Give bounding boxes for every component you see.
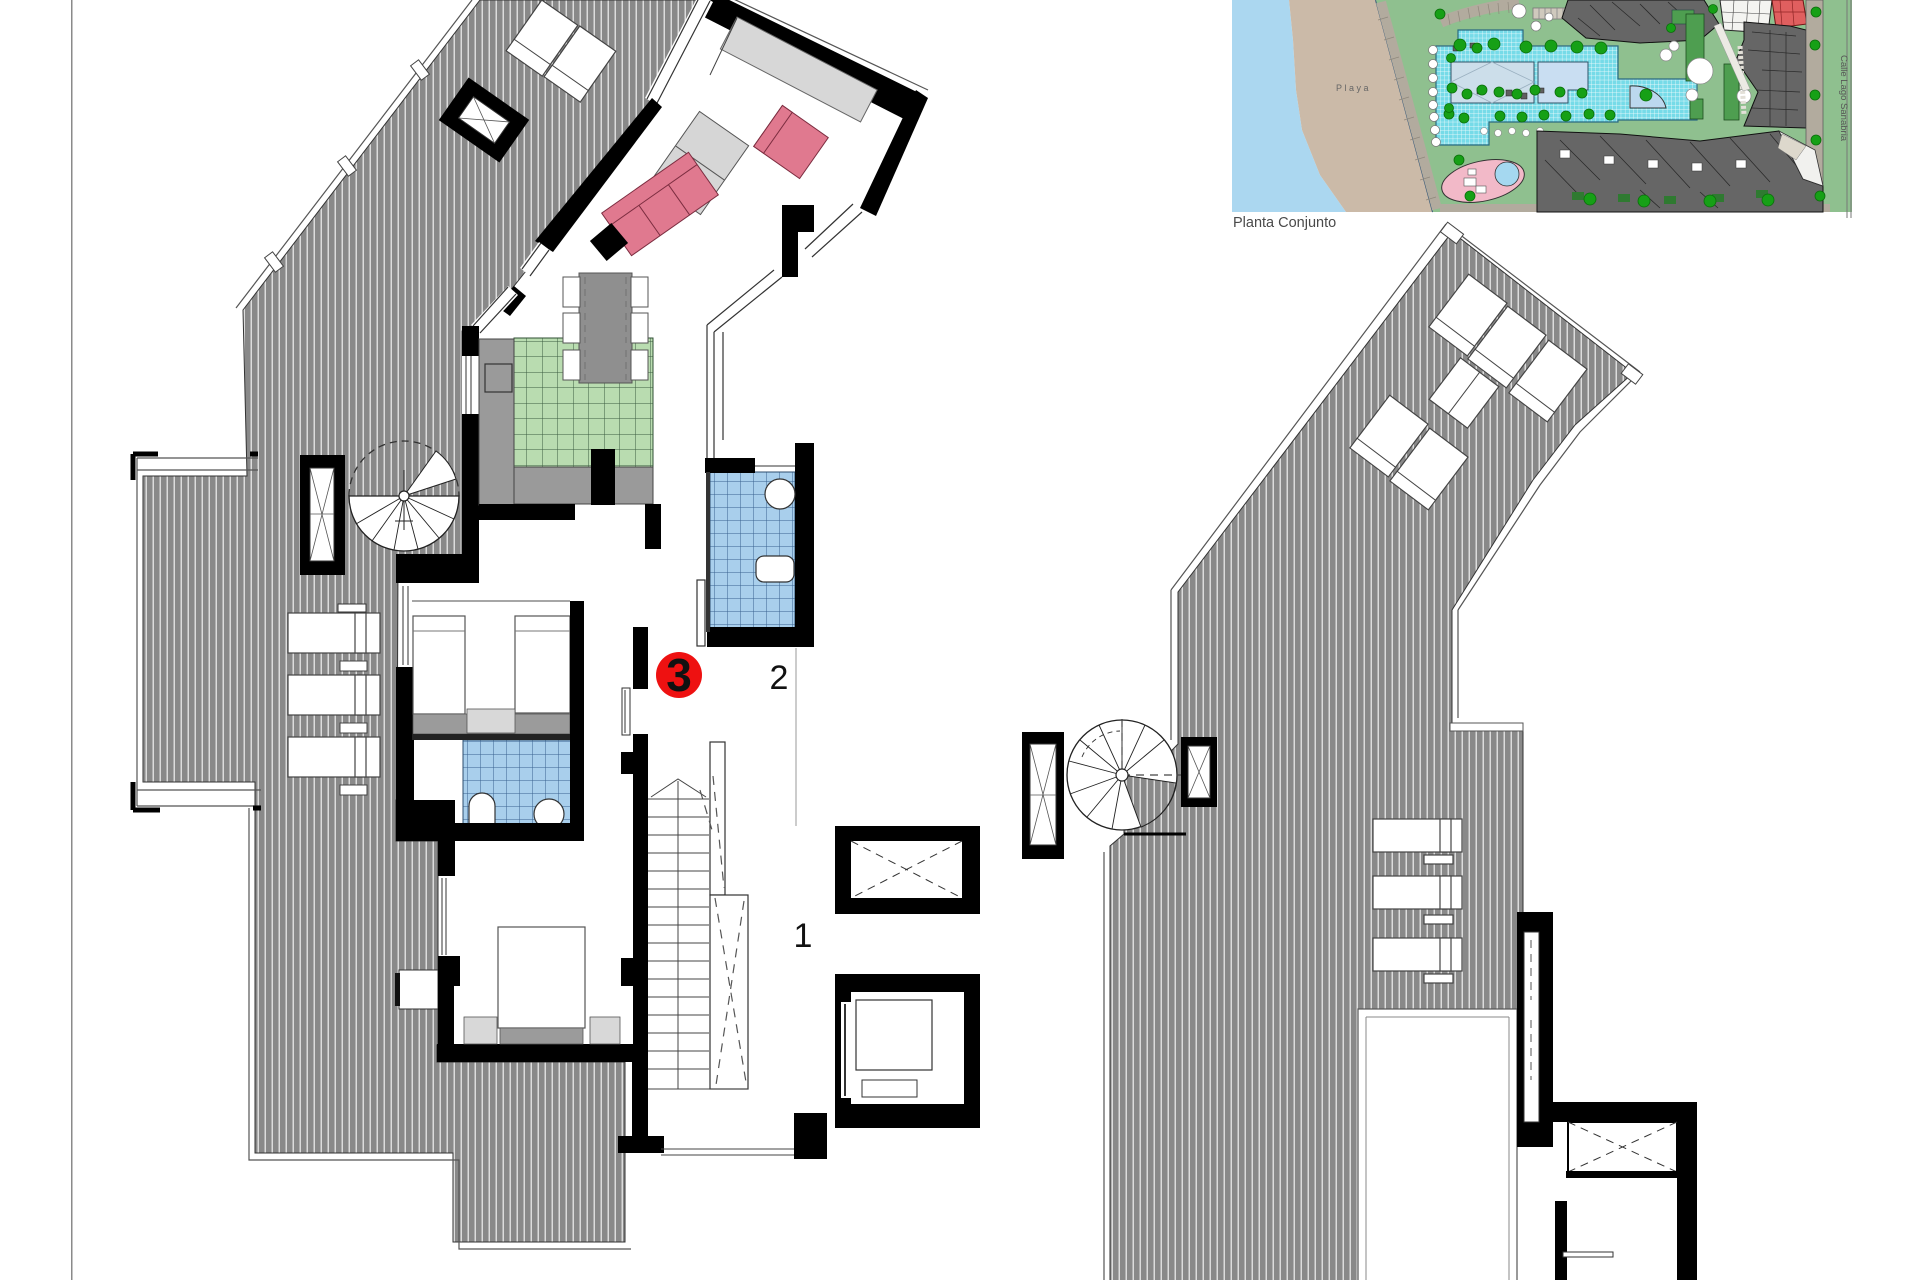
- svg-text:1: 1: [794, 917, 813, 955]
- svg-text:2: 2: [770, 659, 789, 697]
- svg-text:Planta Conjunto: Planta Conjunto: [1233, 215, 1336, 231]
- svg-text:Playa: Playa: [1336, 83, 1371, 93]
- svg-text:Calle Lago Sanabria: Calle Lago Sanabria: [1838, 55, 1849, 142]
- svg-text:3: 3: [666, 649, 692, 701]
